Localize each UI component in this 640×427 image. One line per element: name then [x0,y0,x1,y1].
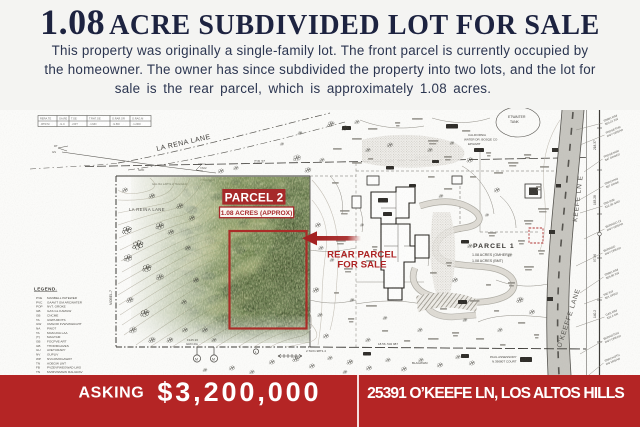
svg-text:FOR SALE: FOR SALE [337,259,387,270]
svg-text:LA REINA LANE: LA REINA LANE [129,207,165,212]
svg-text:PARCEL 2: PARCEL 2 [225,190,284,204]
svg-text:1.08 ACRES (APPROX): 1.08 ACRES (APPROX) [221,210,293,217]
